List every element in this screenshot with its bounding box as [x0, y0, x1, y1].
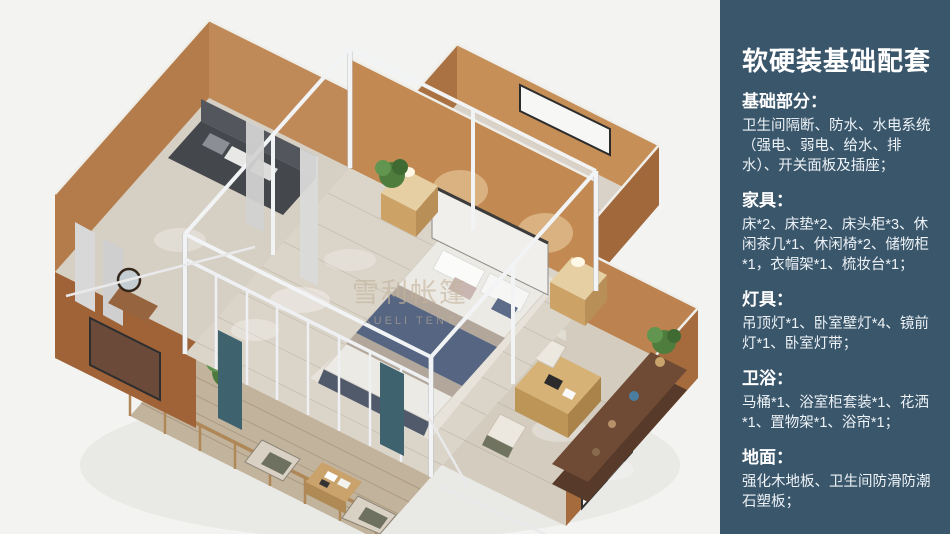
section-heading: 家具： — [742, 189, 934, 212]
slide: 雪利帐篷 XUELI TENT 软硬装基础配套 基础部分： 卫生间隔断、防水、水… — [0, 0, 950, 534]
svg-text:雪利帐篷: 雪利帐篷 — [352, 278, 468, 308]
svg-text:XUELI TENT: XUELI TENT — [363, 315, 456, 327]
section-body: 马桶*1、浴室柜套装*1、花洒*1、置物架*1、浴帘*1； — [742, 393, 934, 433]
section-body: 床*2、床垫*2、床头柜*3、休闲茶几*1、休闲椅*2、储物柜*1，衣帽架*1、… — [742, 215, 934, 275]
curtain — [246, 120, 264, 232]
curtain — [75, 222, 95, 312]
section-body: 吊顶灯*1、卧室壁灯*4、镜前灯*1、卧室灯带； — [742, 314, 934, 354]
sidebar-title: 软硬装基础配套 — [742, 46, 934, 77]
teal-drape — [380, 362, 404, 456]
section-body: 强化木地板、卫生间防滑防潮石塑板； — [742, 472, 934, 512]
section-basics: 基础部分： 卫生间隔断、防水、水电系统（强电、弱电、给水、排水）、开关面板及插座… — [742, 90, 934, 176]
section-lighting: 灯具： 吊顶灯*1、卧室壁灯*4、镜前灯*1、卧室灯带； — [742, 288, 934, 354]
floorplan-svg: 雪利帐篷 XUELI TENT — [0, 0, 720, 534]
package-sidebar: 软硬装基础配套 基础部分： 卫生间隔断、防水、水电系统（强电、弱电、给水、排水）… — [720, 0, 950, 534]
section-bathroom: 卫浴： 马桶*1、浴室柜套装*1、花洒*1、置物架*1、浴帘*1； — [742, 367, 934, 433]
teal-drape — [218, 330, 242, 430]
section-heading: 灯具： — [742, 288, 934, 311]
section-heading: 卫浴： — [742, 367, 934, 390]
section-furniture: 家具： 床*2、床垫*2、床头柜*3、休闲茶几*1、休闲椅*2、储物柜*1，衣帽… — [742, 189, 934, 275]
curtain — [300, 148, 318, 286]
section-heading: 地面： — [742, 446, 934, 469]
section-heading: 基础部分： — [742, 90, 934, 113]
floorplan-3d-render: 雪利帐篷 XUELI TENT — [0, 0, 720, 534]
section-body: 卫生间隔断、防水、水电系统（强电、弱电、给水、排水）、开关面板及插座； — [742, 116, 934, 176]
watermark: 雪利帐篷 XUELI TENT — [352, 278, 468, 327]
section-flooring: 地面： 强化木地板、卫生间防滑防潮石塑板； — [742, 446, 934, 512]
